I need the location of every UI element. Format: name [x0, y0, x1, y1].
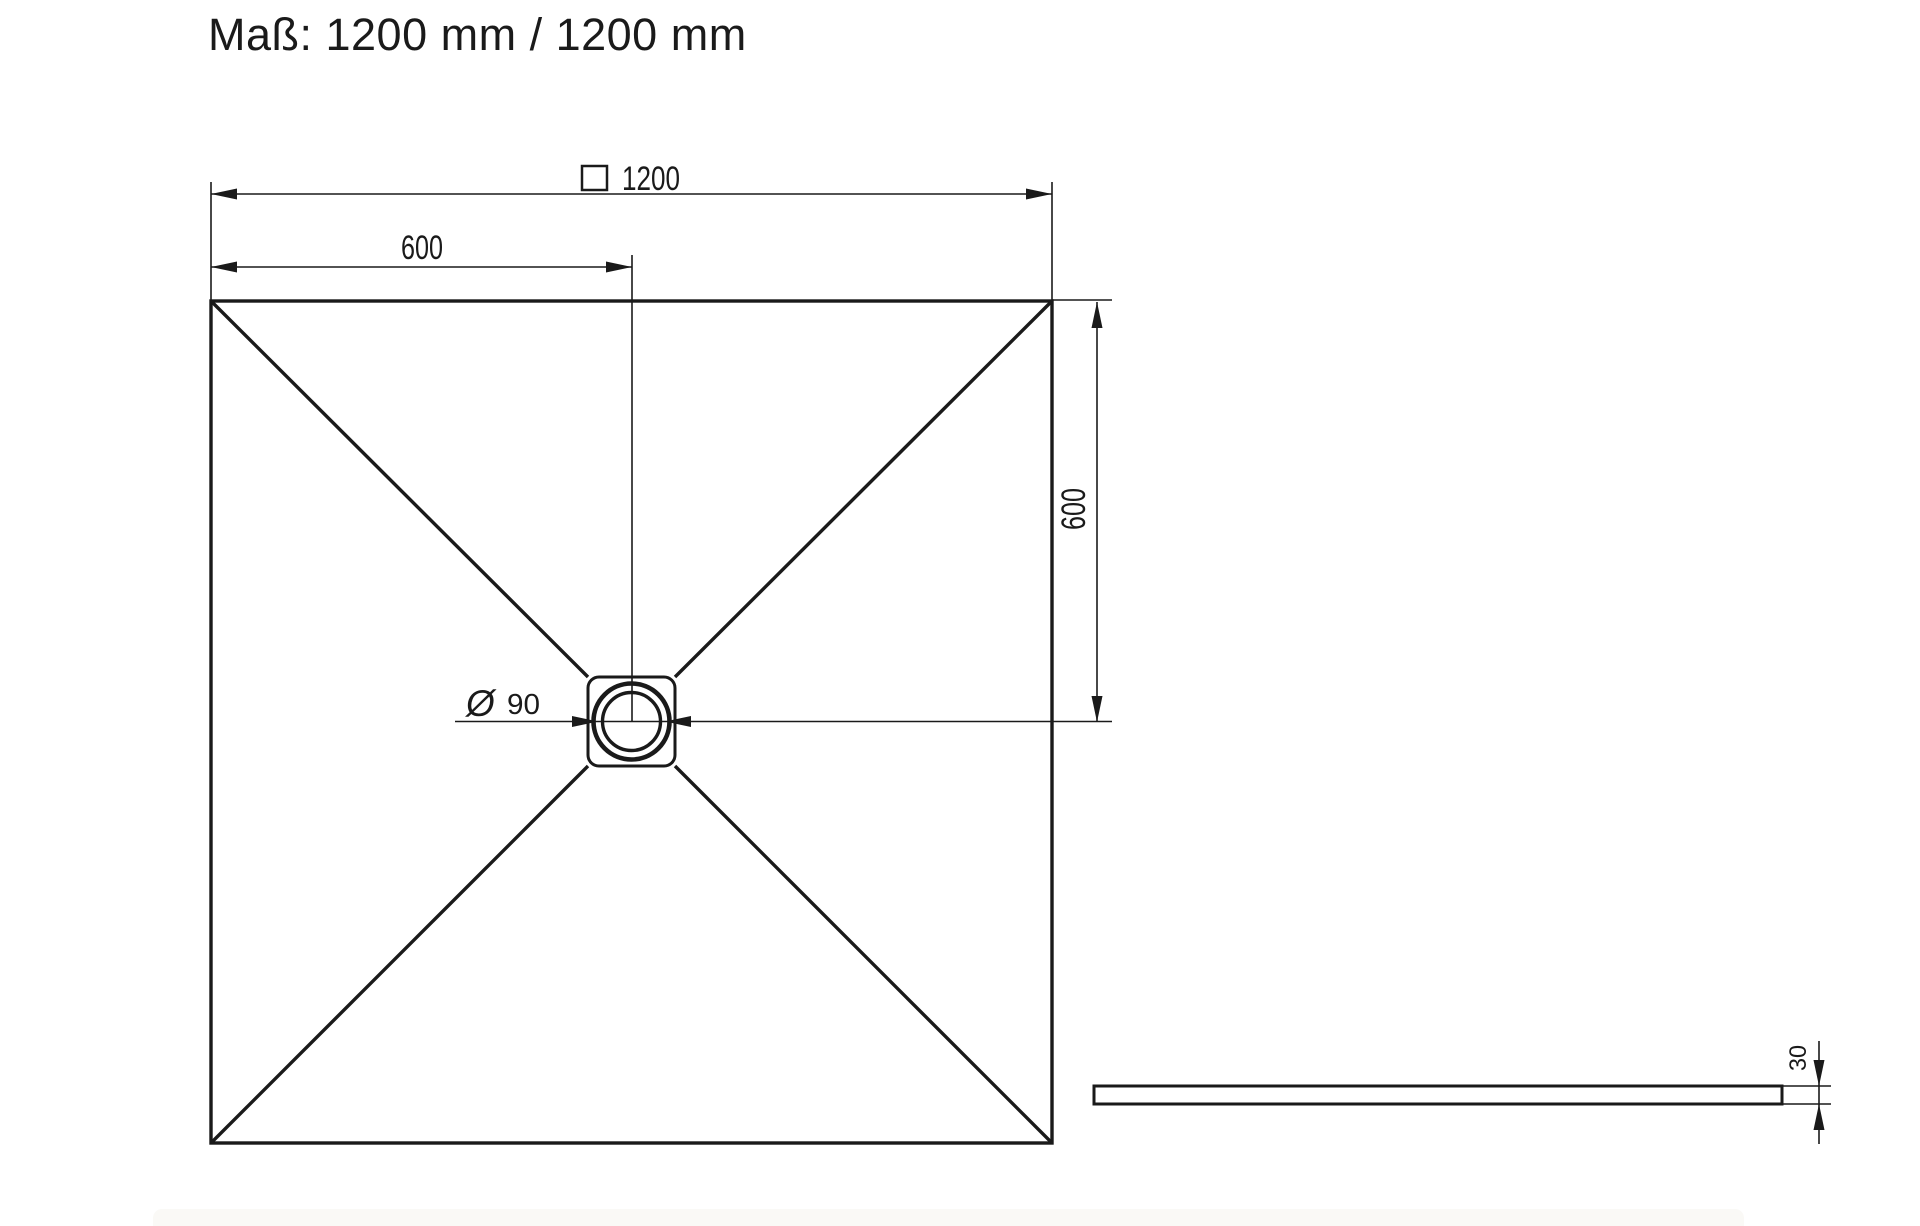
arrow-overall-right-icon — [1026, 189, 1052, 200]
side-profile-outline — [1094, 1086, 1782, 1104]
drawing-title: Maß: 1200 mm / 1200 mm — [208, 9, 747, 60]
slope-diagonal-bottom-right — [675, 766, 1052, 1143]
slope-diagonal-bottom-left — [211, 766, 588, 1143]
shower-tray-drawing: Maß: 1200 mm / 1200 mm 1200 600 600 Ø 90… — [0, 0, 1920, 1226]
dimension-arrowheads — [211, 189, 1825, 1131]
center-offset-vertical-value: 600 — [1055, 488, 1093, 530]
center-offset-horizontal-value: 600 — [401, 229, 443, 267]
drain-diameter-symbol: Ø — [464, 683, 497, 724]
arrow-thickness-bottom-icon — [1814, 1104, 1825, 1130]
arrow-center-v-bottom-icon — [1092, 696, 1103, 722]
arrow-center-h-left-icon — [211, 262, 237, 273]
technical-drawing-page: Maß: 1200 mm / 1200 mm 1200 600 600 Ø 90… — [0, 0, 1920, 1226]
arrow-overall-left-icon — [211, 189, 237, 200]
drain-diameter-value: 90 — [507, 689, 540, 721]
arrow-center-v-top-icon — [1092, 302, 1103, 328]
tray-thickness-value: 30 — [1785, 1045, 1812, 1071]
slope-diagonal-top-right — [675, 301, 1052, 677]
bottom-cutoff-bar — [153, 1209, 1744, 1226]
line-work — [211, 166, 1831, 1144]
overall-width-value: 1200 — [622, 160, 680, 198]
arrow-thickness-top-icon — [1814, 1060, 1825, 1086]
slope-diagonal-top-left — [211, 301, 588, 677]
arrow-center-h-right-icon — [606, 262, 632, 273]
square-outline-icon — [582, 166, 607, 190]
